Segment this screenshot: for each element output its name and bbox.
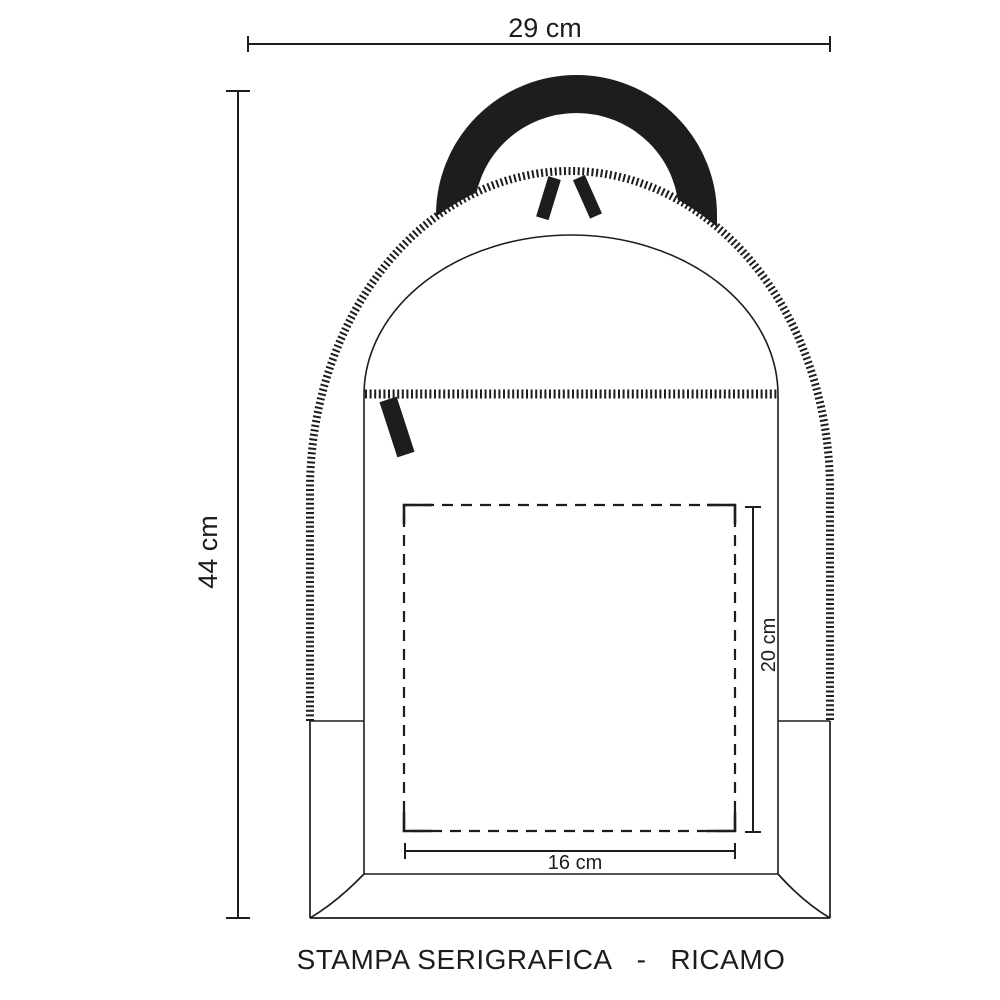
front-panel — [364, 235, 778, 874]
footer-caption-text: STAMPA SERIGRAFICA-RICAMO — [297, 944, 786, 975]
dimension-print-height-label: 20 cm — [758, 618, 780, 672]
dimension-width: 29 cm — [248, 13, 830, 52]
footer-part2: RICAMO — [670, 944, 785, 975]
front-panel-outline — [364, 235, 778, 874]
dimension-height-label: 44 cm — [193, 515, 223, 589]
dimension-height-line — [226, 91, 250, 918]
dimension-width-label: 29 cm — [508, 13, 582, 43]
backpack-spec-sheet: 29 cm 44 cm 20 cm 16 cm STAMPA SERIGRAFI… — [0, 0, 1000, 1000]
footer-separator: - — [637, 944, 647, 975]
dimension-print-width-label: 16 cm — [548, 852, 602, 874]
footer-caption: STAMPA SERIGRAFICA-RICAMO — [297, 944, 786, 975]
footer-part1: STAMPA SERIGRAFICA — [297, 944, 613, 975]
backpack-technical-drawing: 29 cm 44 cm 20 cm 16 cm STAMPA SERIGRAFI… — [0, 0, 1000, 1000]
dimension-height: 44 cm — [193, 91, 250, 918]
